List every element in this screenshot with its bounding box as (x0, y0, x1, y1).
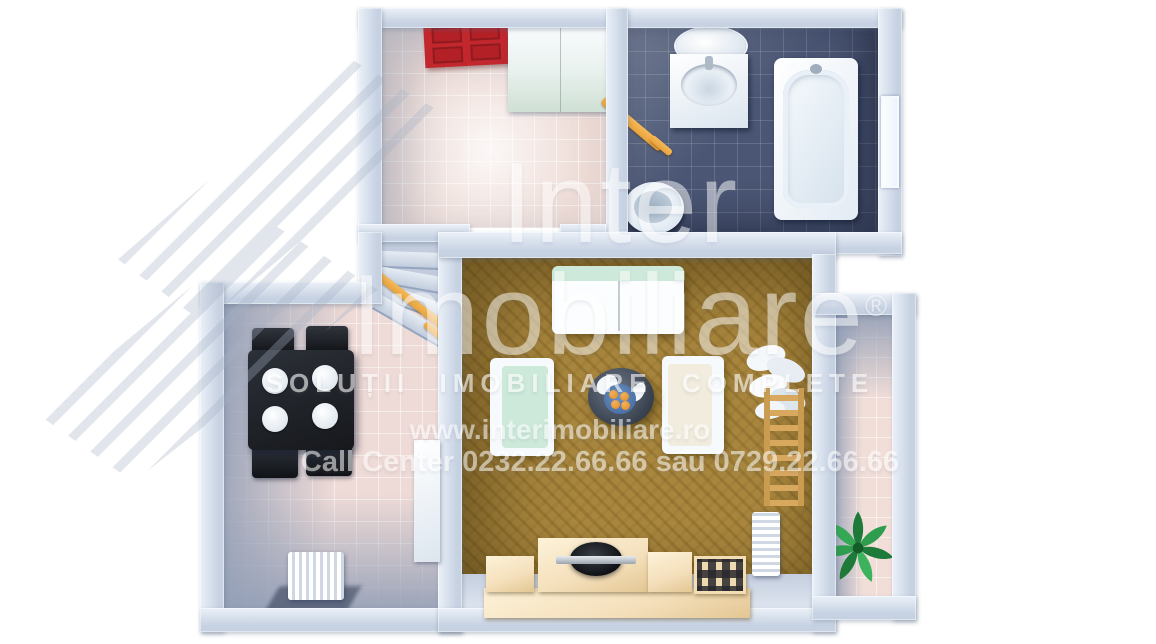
armchair-cushion (502, 366, 548, 448)
hall-wardrobe (508, 20, 612, 112)
toilet (624, 182, 684, 234)
tv-unit-right-step (648, 552, 692, 592)
living-radiator (752, 512, 780, 576)
plate (312, 365, 338, 391)
wall-segment (358, 8, 382, 232)
fruit (621, 401, 630, 410)
wall-segment (358, 8, 902, 28)
armchair-right (662, 356, 724, 454)
plate (262, 368, 288, 394)
wall-segment (812, 596, 916, 620)
wall-segment (438, 232, 836, 258)
dining-chair (252, 446, 298, 478)
wall-segment (200, 608, 462, 632)
tv-unit-center (538, 538, 648, 592)
coffee-table (588, 368, 654, 426)
sink-faucet (705, 56, 713, 70)
dining-table (248, 350, 354, 450)
wall-segment (200, 282, 366, 304)
floor-plan-render: Inter Imobiliare® SOLUȚII IMOBILIARE COM… (0, 0, 1156, 644)
ladder-shelf (764, 388, 804, 506)
wall-segment (200, 282, 224, 632)
fruit (611, 400, 620, 409)
bathtub-basin (783, 70, 849, 208)
bathroom-window (881, 96, 899, 188)
door-leaf (414, 440, 440, 562)
tv-unit-left-table (486, 556, 534, 592)
sofa (552, 266, 684, 334)
tv-stand-bar (556, 556, 636, 564)
fruit (609, 390, 618, 399)
wall-segment (606, 8, 628, 232)
armchair-cushion (668, 364, 712, 446)
plate (262, 406, 288, 432)
armchair-left (490, 358, 554, 456)
sink-basin (681, 64, 737, 106)
bathtub-faucet (810, 64, 822, 74)
toilet-seat (634, 191, 672, 222)
bathtub (774, 58, 858, 220)
tv-unit-cabinet (694, 556, 746, 594)
plate (312, 403, 338, 429)
fruit-bowl (604, 384, 636, 414)
door-panel (470, 43, 501, 61)
door-panel (431, 26, 462, 44)
sink-vanity (670, 54, 748, 128)
wall-segment (438, 232, 462, 632)
dining-radiator (288, 552, 344, 600)
wall-segment (892, 293, 916, 620)
fruit (620, 392, 629, 401)
door-panel (432, 46, 463, 64)
